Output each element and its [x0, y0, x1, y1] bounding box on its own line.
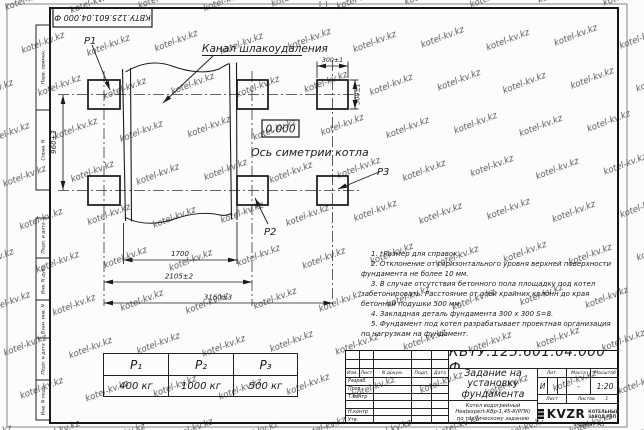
- scale-label: Масштаб: [591, 369, 619, 378]
- sign-cell: [432, 409, 449, 416]
- dim-text-300w: 300±1: [322, 57, 343, 64]
- label-p1: P1: [84, 36, 96, 47]
- sign-cell: [432, 401, 449, 409]
- document-number: КВТУ.125.601.04.000 Ф: [449, 351, 619, 369]
- elevation-mark: 0.000: [262, 120, 299, 137]
- note-line: 3. В случае отсутствия бетонного пола пл…: [361, 280, 616, 310]
- sign-cell: [412, 394, 432, 401]
- kvzr-logo-caption: КОТЕЛЬНЫЙ ЗАВОД РЭП: [588, 409, 619, 419]
- load-table: P₁ P₂ P₃ 400 кг 1000 кг 500 кг: [103, 353, 298, 397]
- strip-label: Подп. и дата: [41, 222, 47, 253]
- sign-prov: Пров.: [346, 386, 374, 394]
- sign-cell: [412, 386, 432, 394]
- technical-notes: 1. *Размер для справок. 2. Отклонение от…: [361, 250, 616, 339]
- sheets-label: Листов: [578, 397, 595, 402]
- sign-cell: [432, 386, 449, 394]
- load-table-header-p1: P₁: [104, 354, 169, 376]
- sign-cell: [374, 386, 412, 394]
- sign-cell: [412, 401, 432, 409]
- strip-label: Справ. N: [41, 139, 47, 161]
- sign-cell: [374, 378, 412, 386]
- revision-cell: [346, 351, 360, 360]
- revision-cell: [374, 351, 412, 360]
- scale-value: 1:20: [591, 378, 619, 395]
- sign-utv: Утв.: [346, 416, 374, 424]
- sign-nkontr: Н.контр: [346, 409, 374, 416]
- revision-cell: [346, 360, 360, 369]
- title-block: Изм. Лист N докум. Подп. Дата Разраб. Пр…: [345, 350, 618, 423]
- sign-cell: [432, 378, 449, 386]
- dim-text-3160: 3160±3: [204, 294, 232, 302]
- sign-cell: [412, 378, 432, 386]
- sign-cell: [374, 394, 412, 401]
- kvzr-logo-text: KVZR: [547, 407, 586, 421]
- manufacturer-logo: KVZR КОТЕЛЬНЫЙ ЗАВОД РЭП: [538, 404, 619, 424]
- load-table-value-p1: 400 кг: [104, 376, 169, 396]
- col-podp: Подп.: [412, 369, 432, 378]
- load-table-value-p2: 1000 кг: [169, 376, 234, 396]
- revision-cell: [360, 360, 374, 369]
- logo-caption-line: ЗАВОД РЭП: [588, 414, 619, 419]
- sheets-cell: Листов 1: [567, 395, 619, 404]
- sign-cell: [374, 401, 412, 409]
- label-p3: P3: [377, 167, 389, 178]
- label-p2: P2: [264, 227, 276, 238]
- col-data: Дата: [432, 369, 449, 378]
- label-slag-channel: Канал шлакоудаления: [202, 43, 328, 55]
- sign-cell: [374, 409, 412, 416]
- sign-cell: [412, 416, 432, 424]
- sign-cell: [412, 409, 432, 416]
- strip-label: Инв. N подл.: [41, 385, 47, 415]
- dim-text-960: 960±3: [50, 130, 58, 154]
- mass-value: -: [567, 378, 591, 395]
- top-stamp-number: КВТУ.125.601.04.000 Ф: [54, 13, 151, 22]
- note-line: 2. Отклонение от горизонтального уровня …: [361, 260, 616, 280]
- col-ndocum: N докум.: [374, 369, 412, 378]
- revision-cell: [432, 351, 449, 360]
- strip-label: Перв. примен.: [41, 50, 47, 85]
- note-line: 4. Закладная деталь фундамента 300 х 300…: [361, 310, 616, 320]
- boiler-subtitle: Котел водогрейный Heatexpert-КВр-1,45-К(…: [449, 401, 538, 424]
- sign-tkontr: Т.контр: [346, 394, 374, 401]
- note-line: 1. *Размер для справок.: [361, 250, 616, 260]
- lit-label: Лит.: [538, 369, 567, 378]
- strip-label: Подп. и дата: [41, 343, 47, 374]
- revision-cell: [360, 351, 374, 360]
- dim-text-300h: 300±1: [355, 83, 362, 104]
- lit-value: И: [538, 378, 548, 395]
- revision-cell: [432, 360, 449, 369]
- revision-cell: [374, 360, 412, 369]
- drawing-sheet: { "watermark": { "text": "kotel-kv.kz" }…: [0, 0, 644, 430]
- format-label: Формат А3: [556, 422, 622, 428]
- sign-cell: [432, 416, 449, 424]
- load-table-header-p3: P₃: [234, 354, 297, 376]
- sign-razrab: Разраб.: [346, 378, 374, 386]
- dim-text-1700: 1700: [171, 250, 189, 258]
- col-izm: Изм.: [346, 369, 360, 378]
- load-table-header-p2: P₂: [169, 354, 234, 376]
- strip-label: Взам. инв. N: [41, 304, 47, 334]
- subtitle-line: по техническому заданию: [457, 416, 529, 422]
- kvzr-logo-icon: [538, 409, 544, 420]
- revision-cell: [412, 360, 432, 369]
- mass-label: Масса: [567, 369, 591, 378]
- note-line: 5. Фундамент под котел разрабатывает про…: [361, 320, 616, 340]
- lit-cell: [548, 378, 558, 395]
- lit-cell: [558, 378, 567, 395]
- elevation-value: 0.000: [265, 124, 295, 136]
- sign-cell: [432, 394, 449, 401]
- sheets-value: 1: [605, 397, 608, 402]
- dim-text-2105: 2105±2: [165, 273, 194, 281]
- label-boiler-axis: Ось симетрии котла: [251, 146, 369, 159]
- load-table-value-p3: 500 кг: [234, 376, 297, 396]
- sign-empty: [346, 401, 374, 409]
- document-title: Задание на установку фундамента: [449, 369, 538, 401]
- title-line: фундамента: [462, 390, 525, 401]
- strip-label: Инв. N дубл.: [41, 264, 47, 294]
- col-list: Лист: [360, 369, 374, 378]
- revision-cell: [412, 351, 432, 360]
- sheet-label: Лист: [538, 395, 567, 404]
- sign-cell: [374, 416, 412, 424]
